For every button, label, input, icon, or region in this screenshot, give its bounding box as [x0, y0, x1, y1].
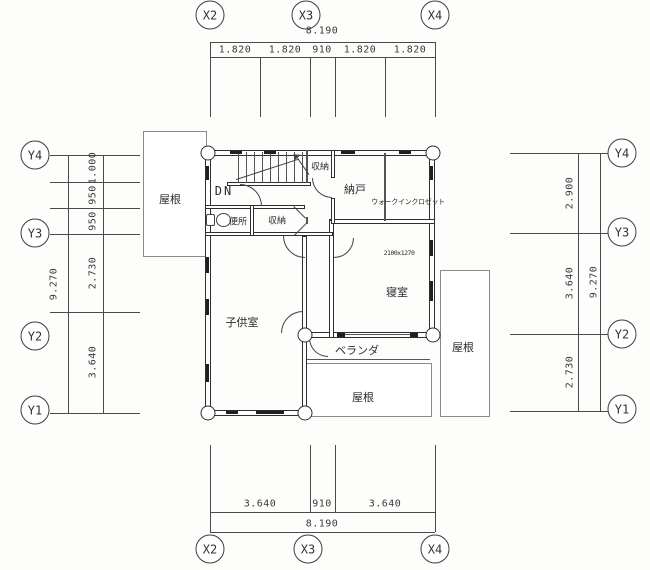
dim-tick: [435, 42, 436, 57]
dim-left-seg-1: 1.000: [88, 152, 99, 185]
window-marker: [206, 299, 209, 315]
window-marker: [264, 151, 276, 154]
dim-extension: [310, 57, 311, 117]
dim-tick: [210, 512, 211, 532]
dim-tick: [50, 208, 140, 209]
dim-top-seg-2: 1.820: [269, 45, 302, 56]
dim-right-overall: 9.270: [589, 266, 600, 299]
window-midline: [345, 334, 410, 335]
dim-line-bottom-overall: [210, 532, 435, 533]
stair-tread: [262, 152, 263, 183]
axis-bubble-y3-right: Y3: [608, 218, 637, 247]
stair-tread: [286, 152, 287, 183]
dim-line-left-segments: [103, 155, 104, 413]
dim-line-left-overall: [68, 155, 69, 413]
dim-left-seg-5: 3.640: [88, 346, 99, 379]
floor-plan-canvas: X2 X3 X4 X2 X3 X4 Y4 Y3 Y2 Y1 Y4 Y3 Y2 Y…: [0, 0, 650, 570]
dim-top-overall: 8.190: [306, 26, 339, 37]
dim-extension: [310, 445, 311, 512]
dim-top-seg-1: 1.820: [219, 45, 252, 56]
stair-tread: [246, 152, 247, 183]
wall-nando-west-lower: [331, 198, 335, 224]
dim-tick: [210, 42, 211, 57]
dim-bottom-overall: 8.190: [306, 519, 339, 530]
window-marker: [341, 151, 355, 154]
dim-tick: [50, 312, 140, 313]
dim-left-seg-3: 950: [88, 211, 99, 231]
window-marker: [430, 166, 433, 180]
door-arc-stairhall: [240, 184, 262, 206]
dim-tick: [510, 153, 608, 154]
dim-left-seg-2: 950: [88, 185, 99, 205]
wall-bedroom-north: [329, 219, 435, 224]
dim-left-seg-4: 2.730: [88, 257, 99, 290]
room-label-veranda: ベランダ: [335, 342, 379, 358]
window-marker: [399, 151, 411, 154]
toilet-tank-icon: [206, 214, 215, 226]
axis-bubble-y4-right: Y4: [608, 139, 637, 168]
dim-line-right-overall: [600, 153, 601, 411]
wall-hall-south: [205, 232, 333, 236]
roof-bottom-label: 屋根: [352, 389, 374, 405]
room-label-stair-down: DN: [215, 184, 233, 198]
dim-bottom-seg-2: 910: [312, 499, 332, 510]
dim-tick: [510, 233, 608, 234]
axis-bubble-y2-right: Y2: [608, 320, 637, 349]
dim-extension: [385, 57, 386, 117]
room-label-closet-stair: 収納: [311, 160, 329, 173]
dim-top-seg-4: 1.820: [344, 45, 377, 56]
window-marker: [256, 411, 284, 414]
dim-tick: [510, 411, 608, 412]
wall-nando-west-upper: [331, 150, 335, 178]
column-marker: [298, 328, 313, 343]
axis-bubble-x2-top: X2: [196, 1, 225, 30]
axis-bubble-y4-left: Y4: [21, 141, 50, 170]
column-marker: [298, 406, 313, 421]
dim-extension: [335, 57, 336, 117]
window-marker: [337, 333, 345, 337]
door-arc-hall-to-kids: [283, 236, 305, 258]
column-marker: [426, 328, 441, 343]
dim-right-seg-1: 2.900: [565, 177, 576, 210]
window-marker: [206, 166, 209, 180]
room-label-bedroom: 寝室: [386, 284, 408, 300]
dim-right-seg-3: 2.730: [565, 356, 576, 389]
wall-wic-divider: [384, 153, 386, 221]
dim-line-top-overall: [210, 42, 435, 43]
dim-tick: [50, 234, 140, 235]
dim-right-seg-2: 3.640: [565, 267, 576, 300]
dim-line-top-segments: [210, 57, 435, 58]
dim-line-bottom-segments: [210, 512, 435, 513]
window-marker: [430, 281, 433, 301]
dim-bottom-seg-3: 3.640: [369, 499, 402, 510]
window-marker: [226, 411, 238, 414]
window-marker: [230, 151, 242, 154]
axis-bubble-x3-bottom: X3: [294, 535, 323, 564]
window-marker: [206, 257, 209, 273]
veranda-rail-line: [305, 359, 430, 360]
axis-bubble-y2-left: Y2: [21, 322, 50, 351]
bed-size-label: 2100x1270: [384, 249, 415, 257]
axis-bubble-y3-left: Y3: [21, 219, 50, 248]
column-marker: [201, 146, 216, 161]
axis-bubble-x2-bottom: X2: [196, 535, 225, 564]
roof-right-label: 屋根: [452, 339, 474, 355]
dim-line-right-segments: [578, 153, 579, 411]
door-arc-veranda: [309, 338, 328, 357]
dim-tick: [510, 334, 608, 335]
wall-stair-closet-divider: [306, 150, 308, 183]
dim-tick: [435, 512, 436, 532]
room-label-walk-in-closet: ウォークインクロゼット: [371, 197, 445, 207]
door-arc-nando: [312, 178, 332, 198]
axis-bubble-y1-right: Y1: [608, 395, 637, 424]
axis-bubble-y1-left: Y1: [21, 396, 50, 425]
room-label-nando: 納戸: [344, 181, 366, 197]
wall-toilet-divider: [250, 205, 254, 236]
door-arc-bedroom: [334, 238, 354, 258]
window-marker: [410, 333, 418, 337]
dim-extension: [210, 57, 211, 117]
stair-arrow-head-icon: [293, 152, 302, 160]
dim-extension: [260, 57, 261, 117]
dim-extension: [435, 445, 436, 512]
window-marker: [430, 240, 433, 256]
stair-tread: [254, 152, 255, 183]
axis-bubble-x4-top: X4: [421, 1, 450, 30]
column-marker: [201, 406, 216, 421]
dim-extension: [335, 445, 336, 512]
room-label-kids-room: 子供室: [226, 314, 259, 330]
room-label-closet-hall: 収納: [268, 214, 286, 227]
dim-tick: [50, 413, 140, 414]
roof-left-label: 屋根: [159, 191, 181, 207]
dim-top-seg-3: 910: [312, 45, 332, 56]
dim-top-seg-5: 1.820: [394, 45, 427, 56]
dim-extension: [435, 57, 436, 117]
dim-left-overall: 9.270: [49, 268, 60, 301]
axis-bubble-x4-bottom: X4: [421, 535, 450, 564]
column-marker: [426, 146, 441, 161]
room-label-toilet: 便所: [229, 215, 247, 228]
window-marker: [206, 364, 209, 382]
stair-tread: [278, 152, 279, 183]
dim-bottom-seg-1: 3.640: [244, 499, 277, 510]
dim-extension: [210, 445, 211, 512]
